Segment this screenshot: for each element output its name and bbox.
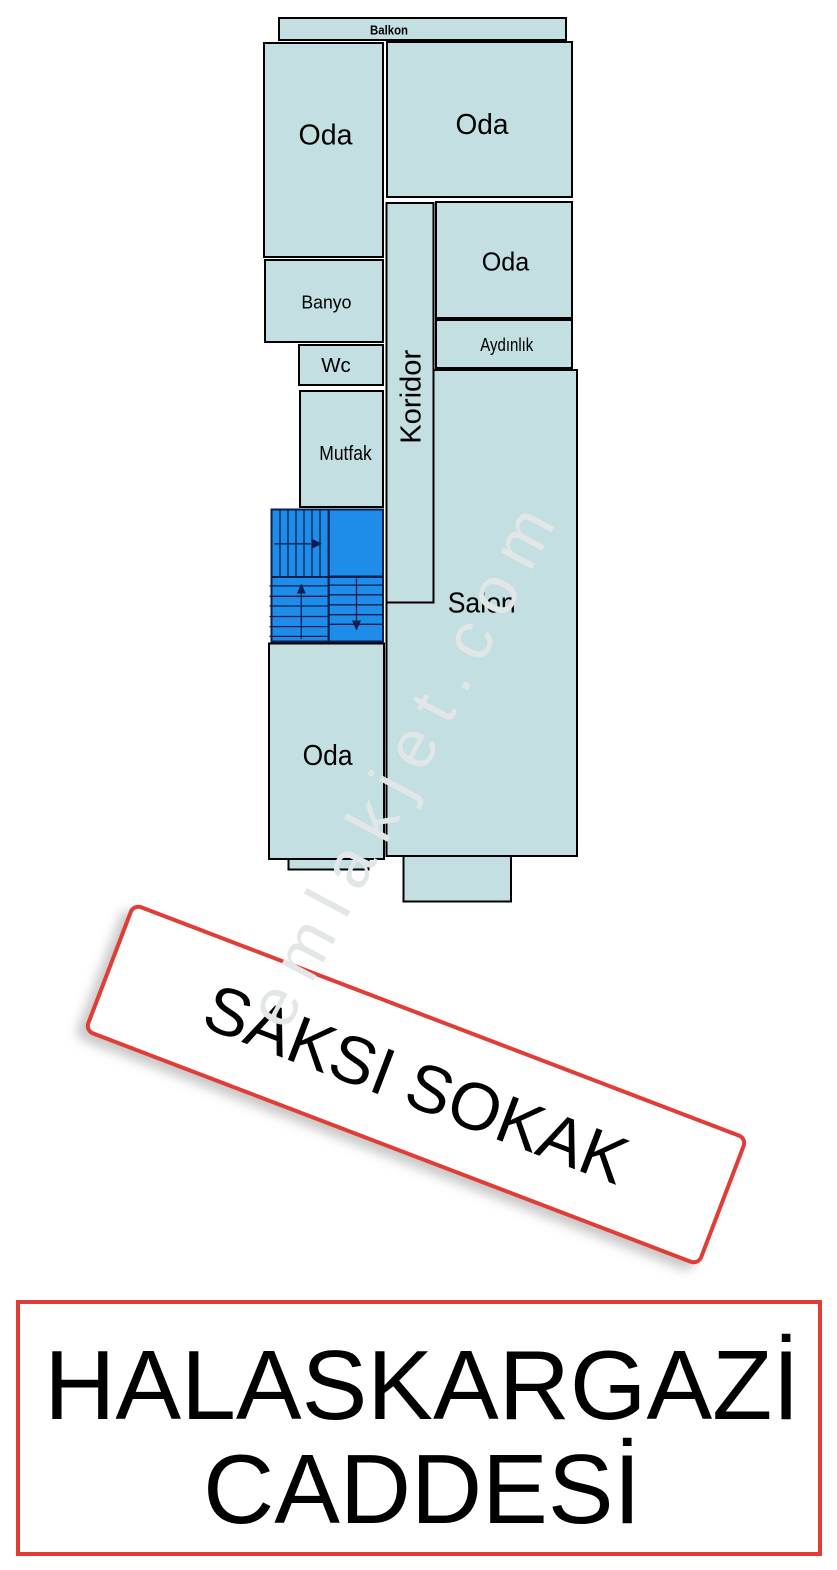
svg-text:Aydınlık: Aydınlık (480, 335, 534, 355)
svg-text:Koridor: Koridor (395, 349, 427, 444)
svg-text:Oda: Oda (303, 740, 353, 772)
svg-text:Mutfak: Mutfak (319, 442, 372, 465)
svg-text:Salon: Salon (448, 588, 516, 620)
svg-text:Banyo: Banyo (301, 292, 351, 313)
svg-text:Oda: Oda (299, 120, 354, 152)
svg-text:Balkon: Balkon (370, 23, 408, 38)
svg-text:Oda: Oda (482, 247, 530, 277)
svg-text:Oda: Oda (456, 109, 510, 141)
svg-text:Wc: Wc (321, 354, 351, 377)
